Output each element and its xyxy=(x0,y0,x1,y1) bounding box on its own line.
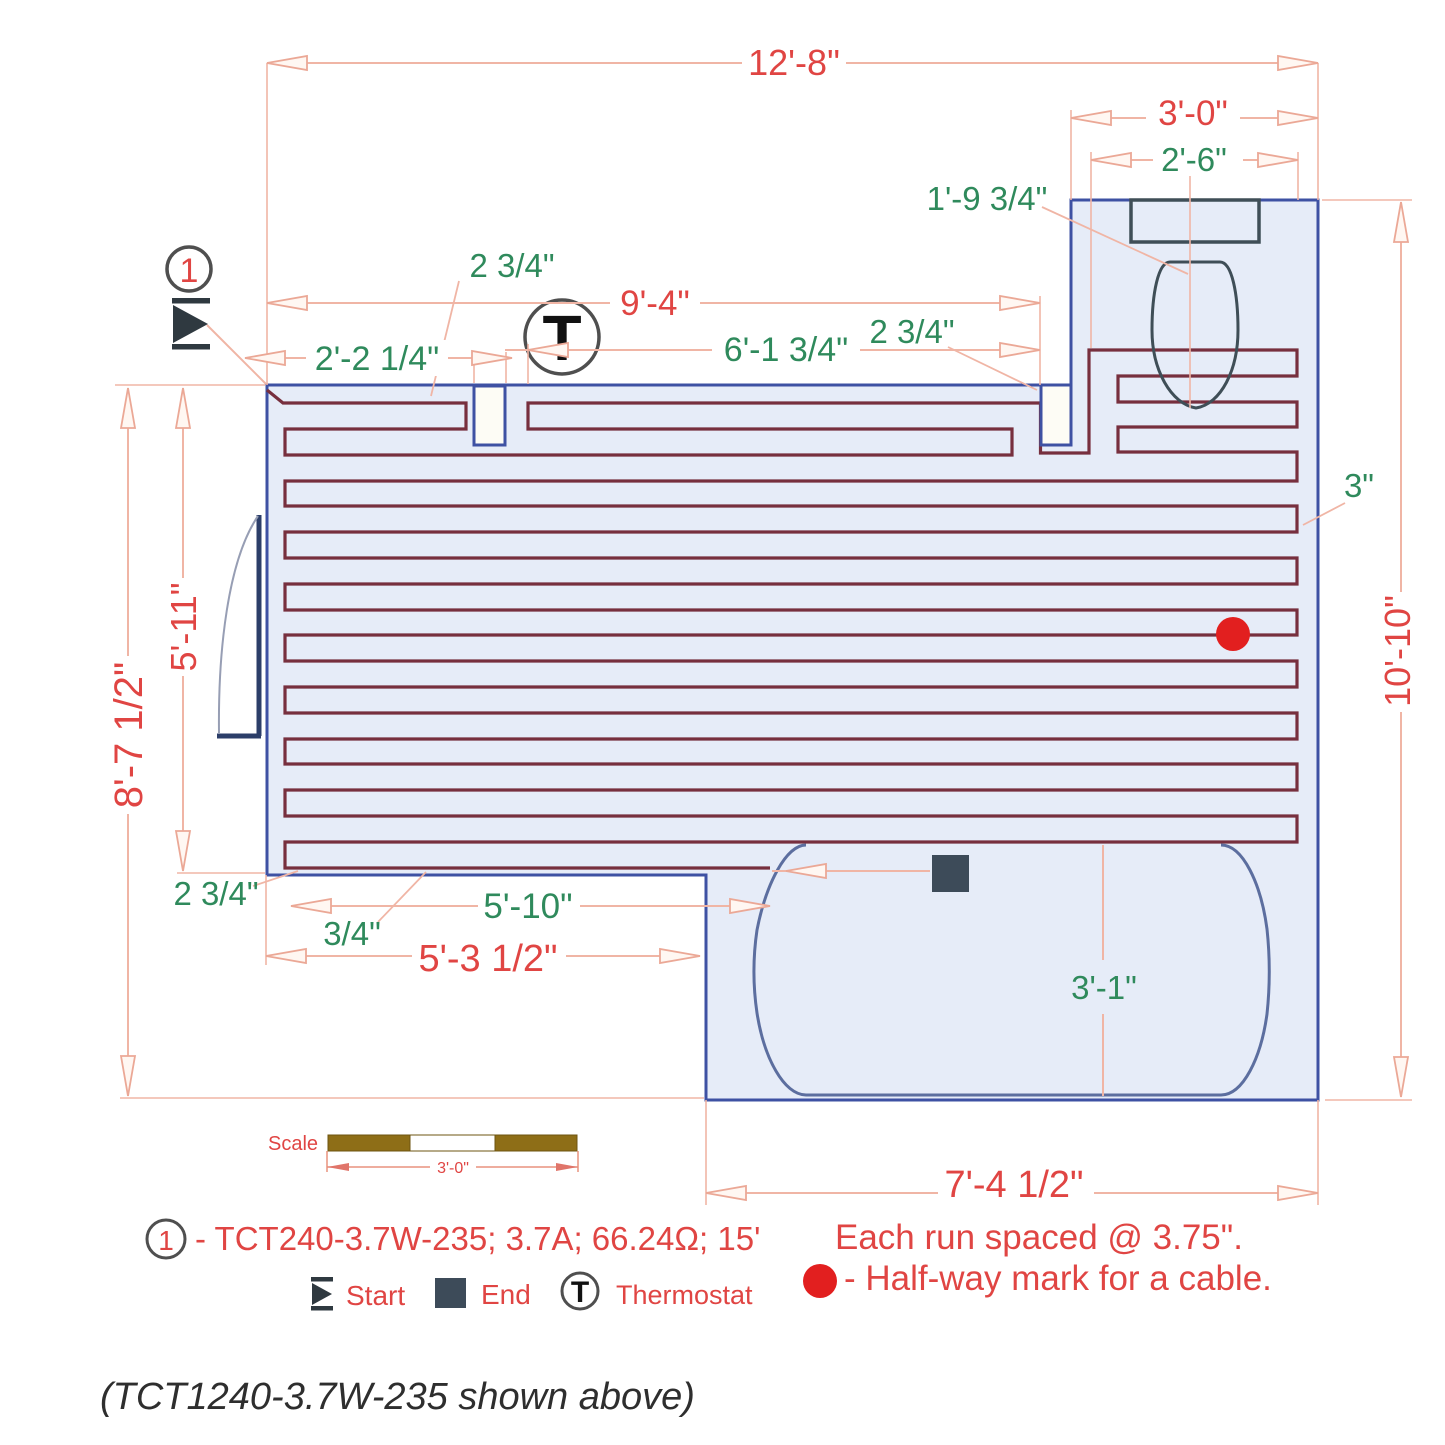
svg-text:3'-1": 3'-1" xyxy=(1071,969,1137,1006)
svg-text:1: 1 xyxy=(180,252,199,290)
svg-text:6'-1 3/4": 6'-1 3/4" xyxy=(724,331,848,369)
svg-text:5'-3 1/2": 5'-3 1/2" xyxy=(418,938,557,980)
svg-text:5'-10": 5'-10" xyxy=(483,887,572,926)
svg-text:- Half-way mark for a cable.: - Half-way mark for a cable. xyxy=(844,1259,1272,1298)
svg-text:Each run spaced @ 3.75".: Each run spaced @ 3.75". xyxy=(835,1218,1243,1257)
svg-text:T: T xyxy=(571,1276,589,1309)
svg-text:- TCT240-3.7W-235; 3.7A; 66.24: - TCT240-3.7W-235; 3.7A; 66.24Ω; 15' xyxy=(195,1220,760,1257)
svg-text:3'-0": 3'-0" xyxy=(1158,94,1228,133)
svg-text:5'-11": 5'-11" xyxy=(163,582,204,671)
svg-text:Start: Start xyxy=(346,1280,405,1311)
svg-text:7'-4 1/2": 7'-4 1/2" xyxy=(944,1164,1083,1206)
svg-text:9'-4": 9'-4" xyxy=(620,284,690,323)
svg-text:End: End xyxy=(481,1279,531,1310)
svg-text:1: 1 xyxy=(158,1225,174,1256)
svg-text:Scale: Scale xyxy=(268,1133,318,1155)
svg-text:3'-0": 3'-0" xyxy=(437,1160,469,1177)
svg-text:Thermostat: Thermostat xyxy=(616,1280,753,1310)
svg-text:2 3/4": 2 3/4" xyxy=(869,313,954,350)
svg-text:10'-10": 10'-10" xyxy=(1377,595,1418,707)
svg-text:(TCT1240-3.7W-235 shown above): (TCT1240-3.7W-235 shown above) xyxy=(100,1376,695,1418)
svg-text:12'-8": 12'-8" xyxy=(748,42,840,83)
svg-text:2'-6": 2'-6" xyxy=(1161,141,1227,178)
svg-text:8'-7 1/2": 8'-7 1/2" xyxy=(107,662,151,808)
svg-text:2 3/4": 2 3/4" xyxy=(469,247,554,284)
svg-text:3": 3" xyxy=(1344,467,1374,504)
svg-text:3/4": 3/4" xyxy=(323,915,381,952)
svg-text:1'-9 3/4": 1'-9 3/4" xyxy=(927,180,1048,217)
svg-text:2'-2 1/4": 2'-2 1/4" xyxy=(315,340,439,378)
svg-text:T: T xyxy=(542,302,581,374)
svg-text:2 3/4": 2 3/4" xyxy=(173,875,258,912)
